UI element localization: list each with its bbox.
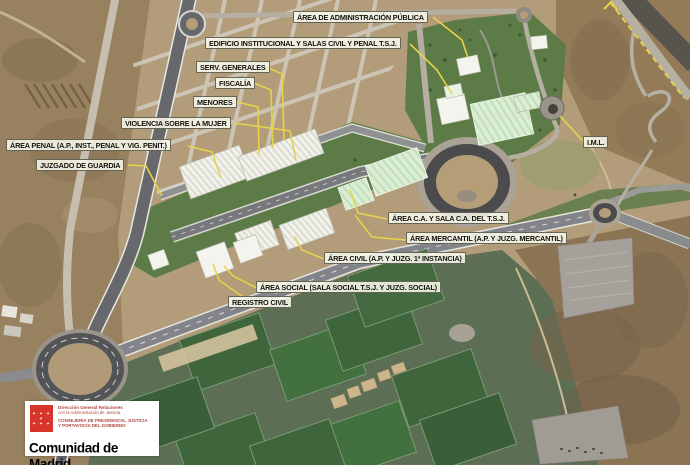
logo-title: Comunidad de Madrid	[25, 437, 159, 465]
satellite-map	[0, 0, 690, 465]
logo-consejeria-line2: Y PORTAVOCÍA DEL GOBIERNO	[58, 423, 147, 428]
flag-stars-row1: ✦ ✦ ✦ ✦	[30, 411, 53, 421]
parking-lot-north	[558, 238, 634, 318]
comunidad-madrid-flag-icon: ✦ ✦ ✦ ✦ ✦ ✦ ✦	[30, 405, 53, 432]
flag-stars-row2: ✦ ✦ ✦	[32, 421, 51, 426]
logo-direccion-line2: con la Administración de Justicia	[58, 410, 147, 415]
comunidad-madrid-logo: ✦ ✦ ✦ ✦ ✦ ✦ ✦ Dirección General Relacion…	[25, 401, 159, 456]
campus-justicia-aerial-plan: ÁREA DE ADMINISTRACIÓN PÚBLICAEDIFICIO I…	[0, 0, 690, 465]
small-oval-court	[449, 324, 475, 342]
